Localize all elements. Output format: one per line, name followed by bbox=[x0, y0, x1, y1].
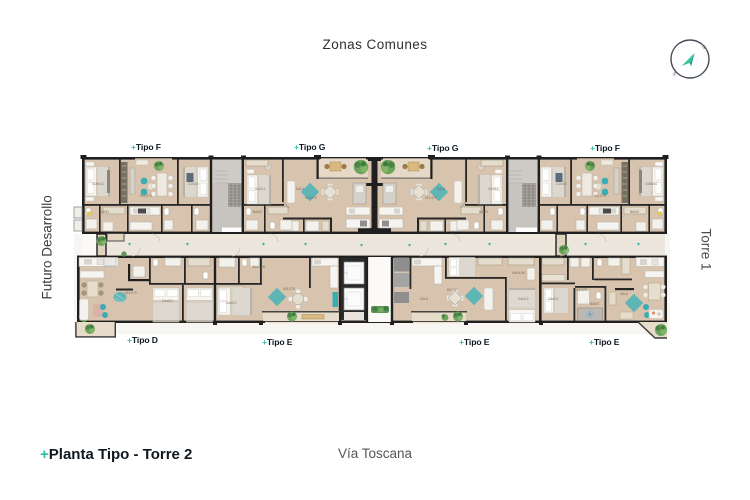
svg-text:915.07S: 915.07S bbox=[305, 196, 317, 200]
svg-text:BANO: BANO bbox=[100, 210, 110, 214]
svg-text:915.07S: 915.07S bbox=[594, 194, 606, 198]
svg-text:SALA: SALA bbox=[296, 187, 305, 191]
svg-text:SALA: SALA bbox=[420, 297, 429, 301]
svg-text:915.07S: 915.07S bbox=[425, 196, 437, 200]
svg-text:915.07S: 915.07S bbox=[283, 287, 295, 291]
svg-text:4.0x3.1: 4.0x3.1 bbox=[255, 187, 266, 191]
svg-text:3.6x3.0: 3.6x3.0 bbox=[226, 301, 237, 305]
svg-text:BANO: BANO bbox=[590, 302, 600, 306]
svg-text:4.05x3.0: 4.05x3.0 bbox=[92, 182, 104, 186]
svg-text:915.07S: 915.07S bbox=[125, 291, 137, 295]
svg-text:4.05x3.0: 4.05x3.0 bbox=[645, 182, 657, 186]
svg-text:3.6x3.0: 3.6x3.0 bbox=[548, 297, 559, 301]
svg-text:3.2x3.0: 3.2x3.0 bbox=[556, 182, 567, 186]
svg-text:BANO: BANO bbox=[630, 210, 640, 214]
svg-text:S: S bbox=[671, 71, 678, 78]
svg-text:SALA: SALA bbox=[437, 187, 446, 191]
svg-text:WALK/IN: WALK/IN bbox=[252, 265, 266, 269]
svg-text:SALA: SALA bbox=[620, 292, 629, 296]
svg-text:WALK/IN: WALK/IN bbox=[512, 271, 526, 275]
svg-text:3.6x3.0: 3.6x3.0 bbox=[518, 297, 529, 301]
svg-text:4.0x3.1: 4.0x3.1 bbox=[488, 187, 499, 191]
svg-text:3.2x3.0: 3.2x3.0 bbox=[188, 182, 199, 186]
svg-text:847.07: 847.07 bbox=[447, 288, 457, 292]
svg-text:915.07S: 915.07S bbox=[140, 194, 152, 198]
svg-text:915.07S: 915.07S bbox=[575, 288, 587, 292]
svg-text:BANO: BANO bbox=[253, 210, 263, 214]
svg-text:3.4x3.0: 3.4x3.0 bbox=[162, 299, 173, 303]
svg-text:BANO: BANO bbox=[479, 210, 489, 214]
